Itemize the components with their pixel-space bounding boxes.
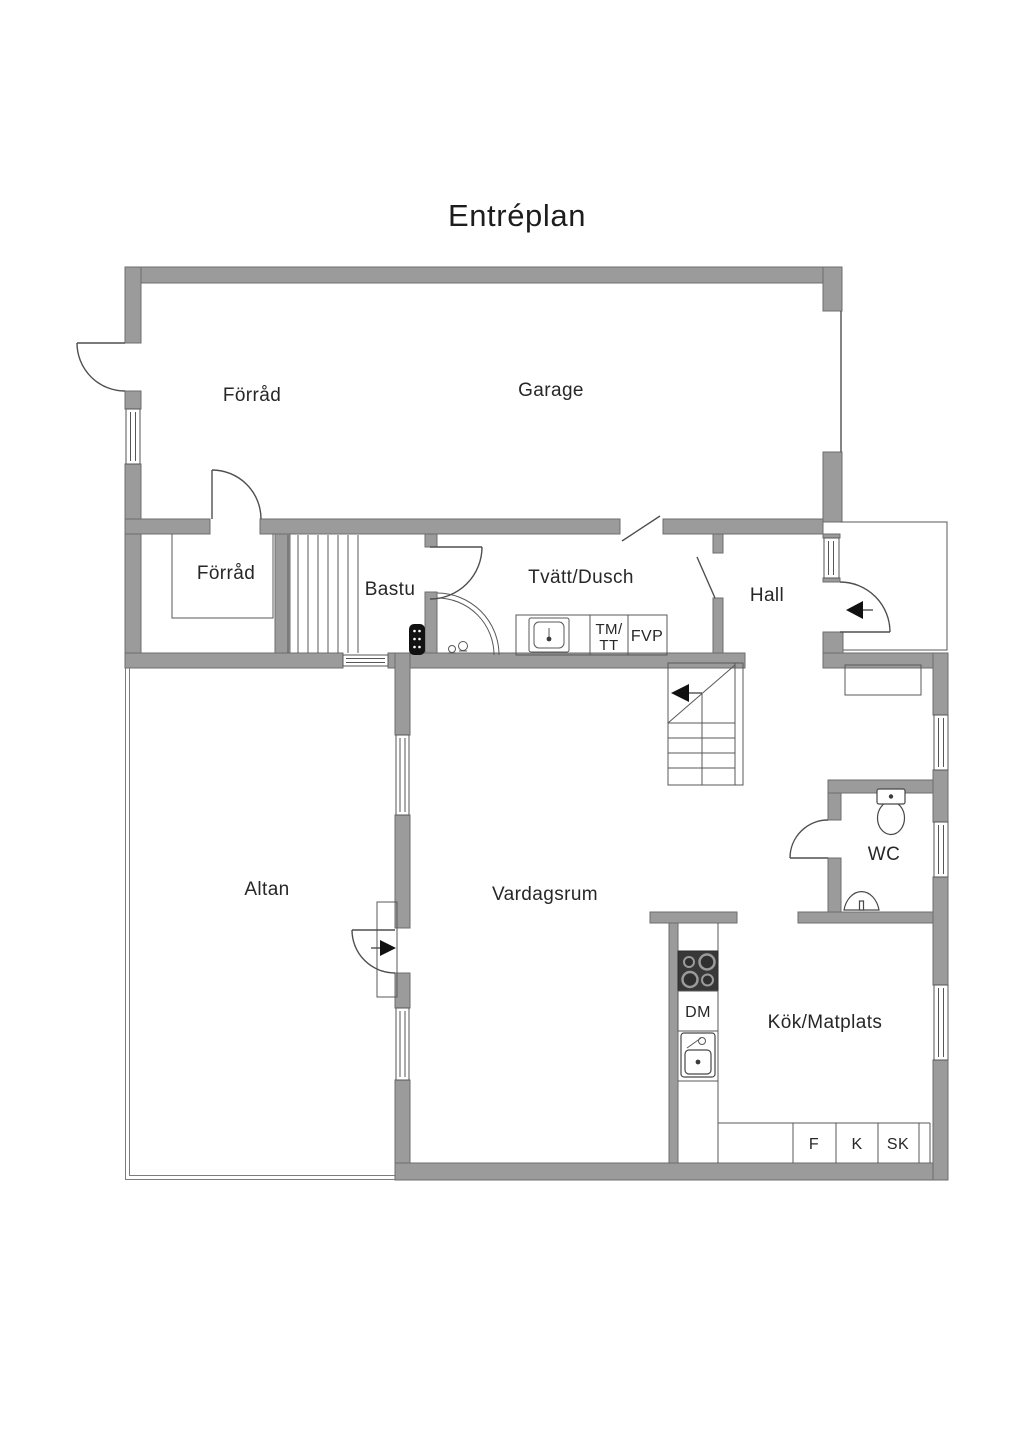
door-garage-tvatt [622,516,660,541]
wc-sink [844,892,879,910]
wall [823,534,840,538]
wall [823,653,948,668]
wall [425,534,437,547]
window [934,822,948,877]
wall [798,912,933,923]
wall [663,519,823,534]
window [934,715,948,770]
wall [650,912,737,923]
wc-toilet [877,789,905,835]
appliance-label-k: K [851,1136,862,1153]
wall [823,578,840,582]
wall [125,464,141,668]
window [126,409,140,464]
door-bastu [430,547,482,599]
wall [713,598,723,653]
window [824,538,839,578]
wall [125,653,343,668]
room-label-bastu: Bastu [365,579,416,600]
wall [933,877,948,985]
altan-edge-outer [126,668,397,1180]
hall-wardrobe [845,665,921,695]
shower-corner [437,593,499,655]
window [934,985,948,1060]
door-garage-exterior [77,343,125,391]
wall [823,452,842,522]
floorplan-drawing: Entréplan Förråd Garage Förråd Bastu Tvä… [0,0,1024,1448]
stair-direction-arrow [671,684,689,702]
door-forrad-small [212,470,261,519]
outside-outlines [126,311,948,1180]
wall [260,519,620,534]
porch-outline [840,522,947,650]
wall [713,534,723,553]
sauna-heater [409,624,425,655]
wall [933,653,948,715]
wall [395,653,410,735]
room-label-wc: WC [868,844,900,865]
wall [933,770,948,822]
kitchen-sink [681,1033,715,1077]
stairs-bastu-side [288,535,358,653]
wall [125,519,210,534]
room-label-forrad-large: Förråd [223,385,281,406]
wall [425,592,437,653]
door-altan [352,902,397,997]
room-label-vardagsrum: Vardagsrum [492,884,598,905]
wall [828,793,841,820]
page-title: Entréplan [448,198,586,233]
room-label-garage: Garage [518,380,584,401]
appliance-label-sk: SK [887,1136,909,1153]
wall [125,267,840,283]
altan-edge-inner [130,668,397,1176]
stairs-central [668,663,743,785]
doors [77,343,890,997]
appliance-label-fvp: FVP [631,628,663,645]
wall [395,1080,410,1177]
room-label-hall: Hall [750,585,784,606]
door-hall-tvatt [697,557,715,598]
door-wc [790,820,828,858]
appliance-label-dm: DM [685,1004,711,1021]
entry-arrow [846,601,863,619]
appliance-label-tm: TM/ [595,621,622,638]
room-label-altan: Altan [244,879,289,900]
window [396,735,409,815]
laundry-counter [516,615,590,655]
room-label-forrad-small: Förråd [197,563,255,584]
appliance-label-tt: TT [599,637,618,654]
wall [395,1163,948,1180]
floorplan-page: Entréplan Förråd Garage Förråd Bastu Tvä… [0,0,1024,1448]
wall [125,391,141,409]
altan-entry-arrow [380,940,396,956]
appliance-label-f: F [809,1136,819,1153]
window [396,1008,409,1080]
wall [828,858,841,912]
stove [678,951,718,991]
door-entry [840,582,890,632]
wall [125,267,141,343]
labels: Entréplan Förråd Garage Förråd Bastu Tvä… [197,198,909,1153]
room-label-tvatt-dusch: Tvätt/Dusch [528,567,634,588]
window [343,655,388,666]
room-label-kok-matplats: Kök/Matplats [768,1012,883,1033]
wall [669,923,678,1163]
wall [933,1060,948,1180]
wall [823,267,842,311]
